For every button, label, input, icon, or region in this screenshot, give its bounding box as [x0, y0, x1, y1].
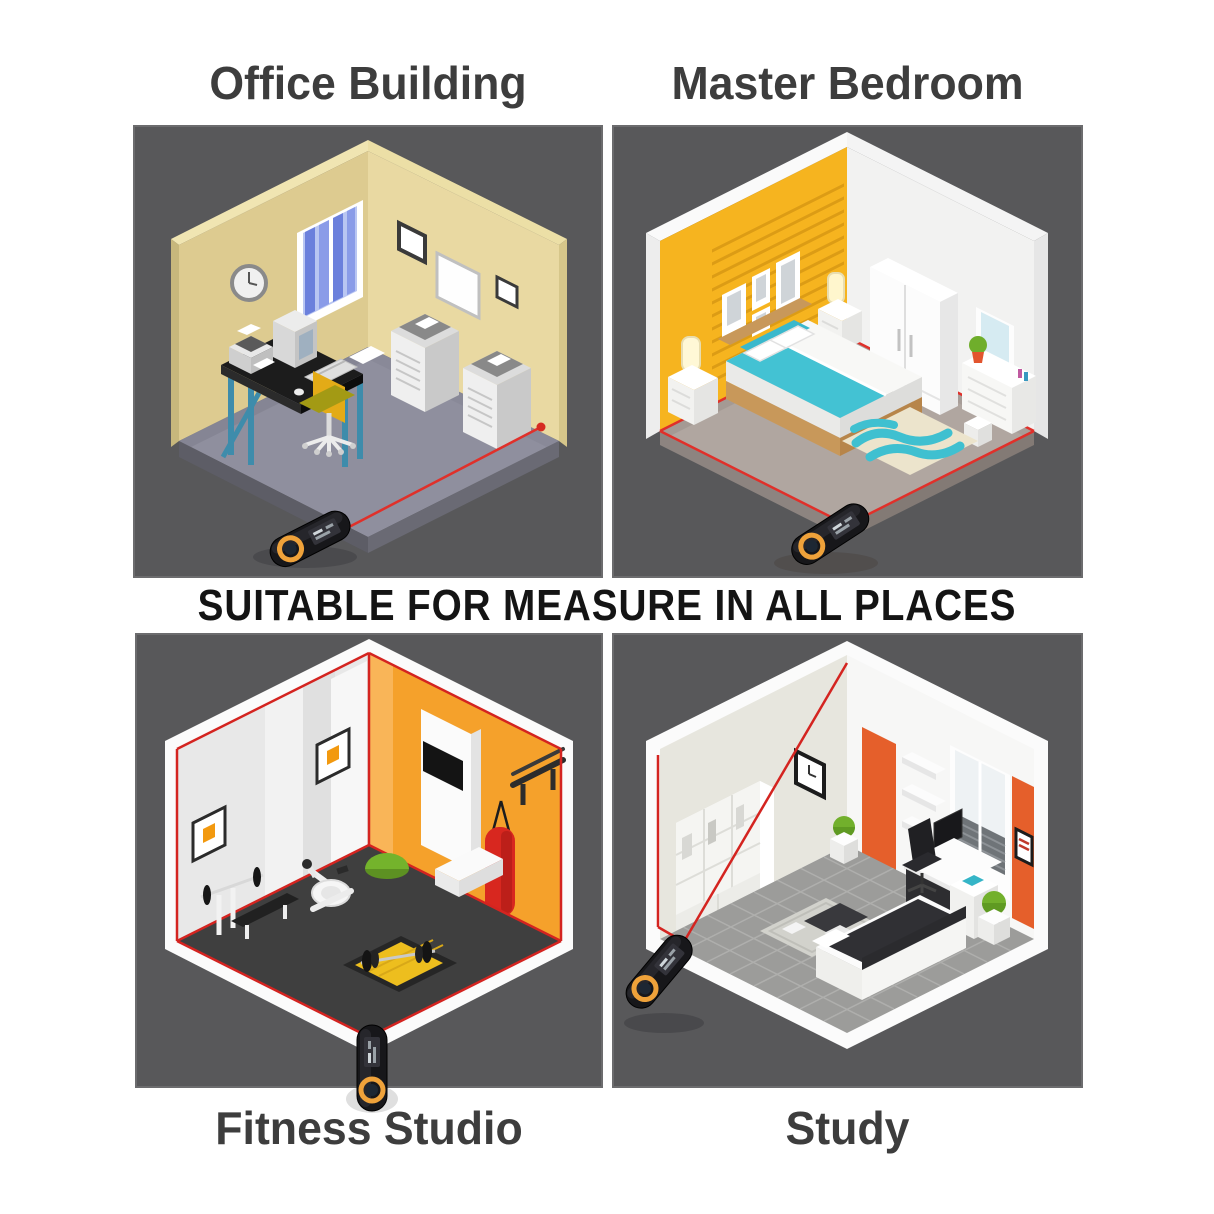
- copier: [391, 314, 459, 412]
- wall-panel: [265, 687, 303, 902]
- wall-clock: [232, 266, 266, 300]
- office-room-panel: [133, 125, 603, 578]
- wall-door: [421, 709, 471, 870]
- laser-dot: [537, 423, 546, 432]
- office-room-illustration: [133, 125, 603, 578]
- fitness-studio-panel: [135, 633, 603, 1088]
- panel-title-study: Study: [619, 1101, 1076, 1155]
- wall-outer-edge: [171, 239, 179, 447]
- wall-outer-edge: [646, 233, 660, 439]
- panel-title-office-building: Office Building: [140, 56, 596, 110]
- potted-plant: [830, 816, 858, 864]
- orange-wall-panel: [1012, 776, 1034, 929]
- device-shadow: [624, 1013, 704, 1033]
- potted-plant: [978, 891, 1010, 945]
- wall-outer-edge: [1034, 233, 1048, 439]
- wall-outer-edge: [559, 239, 567, 447]
- study-illustration: [612, 633, 1083, 1088]
- laser-measure-infographic: Office Building Master Bedroom SUITABLE …: [0, 0, 1214, 1214]
- copier: [463, 351, 531, 449]
- fitness-studio-illustration: [135, 633, 603, 1088]
- wall-panel: [369, 653, 393, 857]
- laser-device: [357, 1025, 387, 1111]
- bedroom-panel: [612, 125, 1083, 578]
- panel-title-master-bedroom: Master Bedroom: [619, 56, 1076, 110]
- banner-text: SUITABLE FOR MEASURE IN ALL PLACES: [73, 581, 1141, 631]
- bedroom-illustration: [612, 125, 1083, 578]
- study-panel: [612, 633, 1083, 1088]
